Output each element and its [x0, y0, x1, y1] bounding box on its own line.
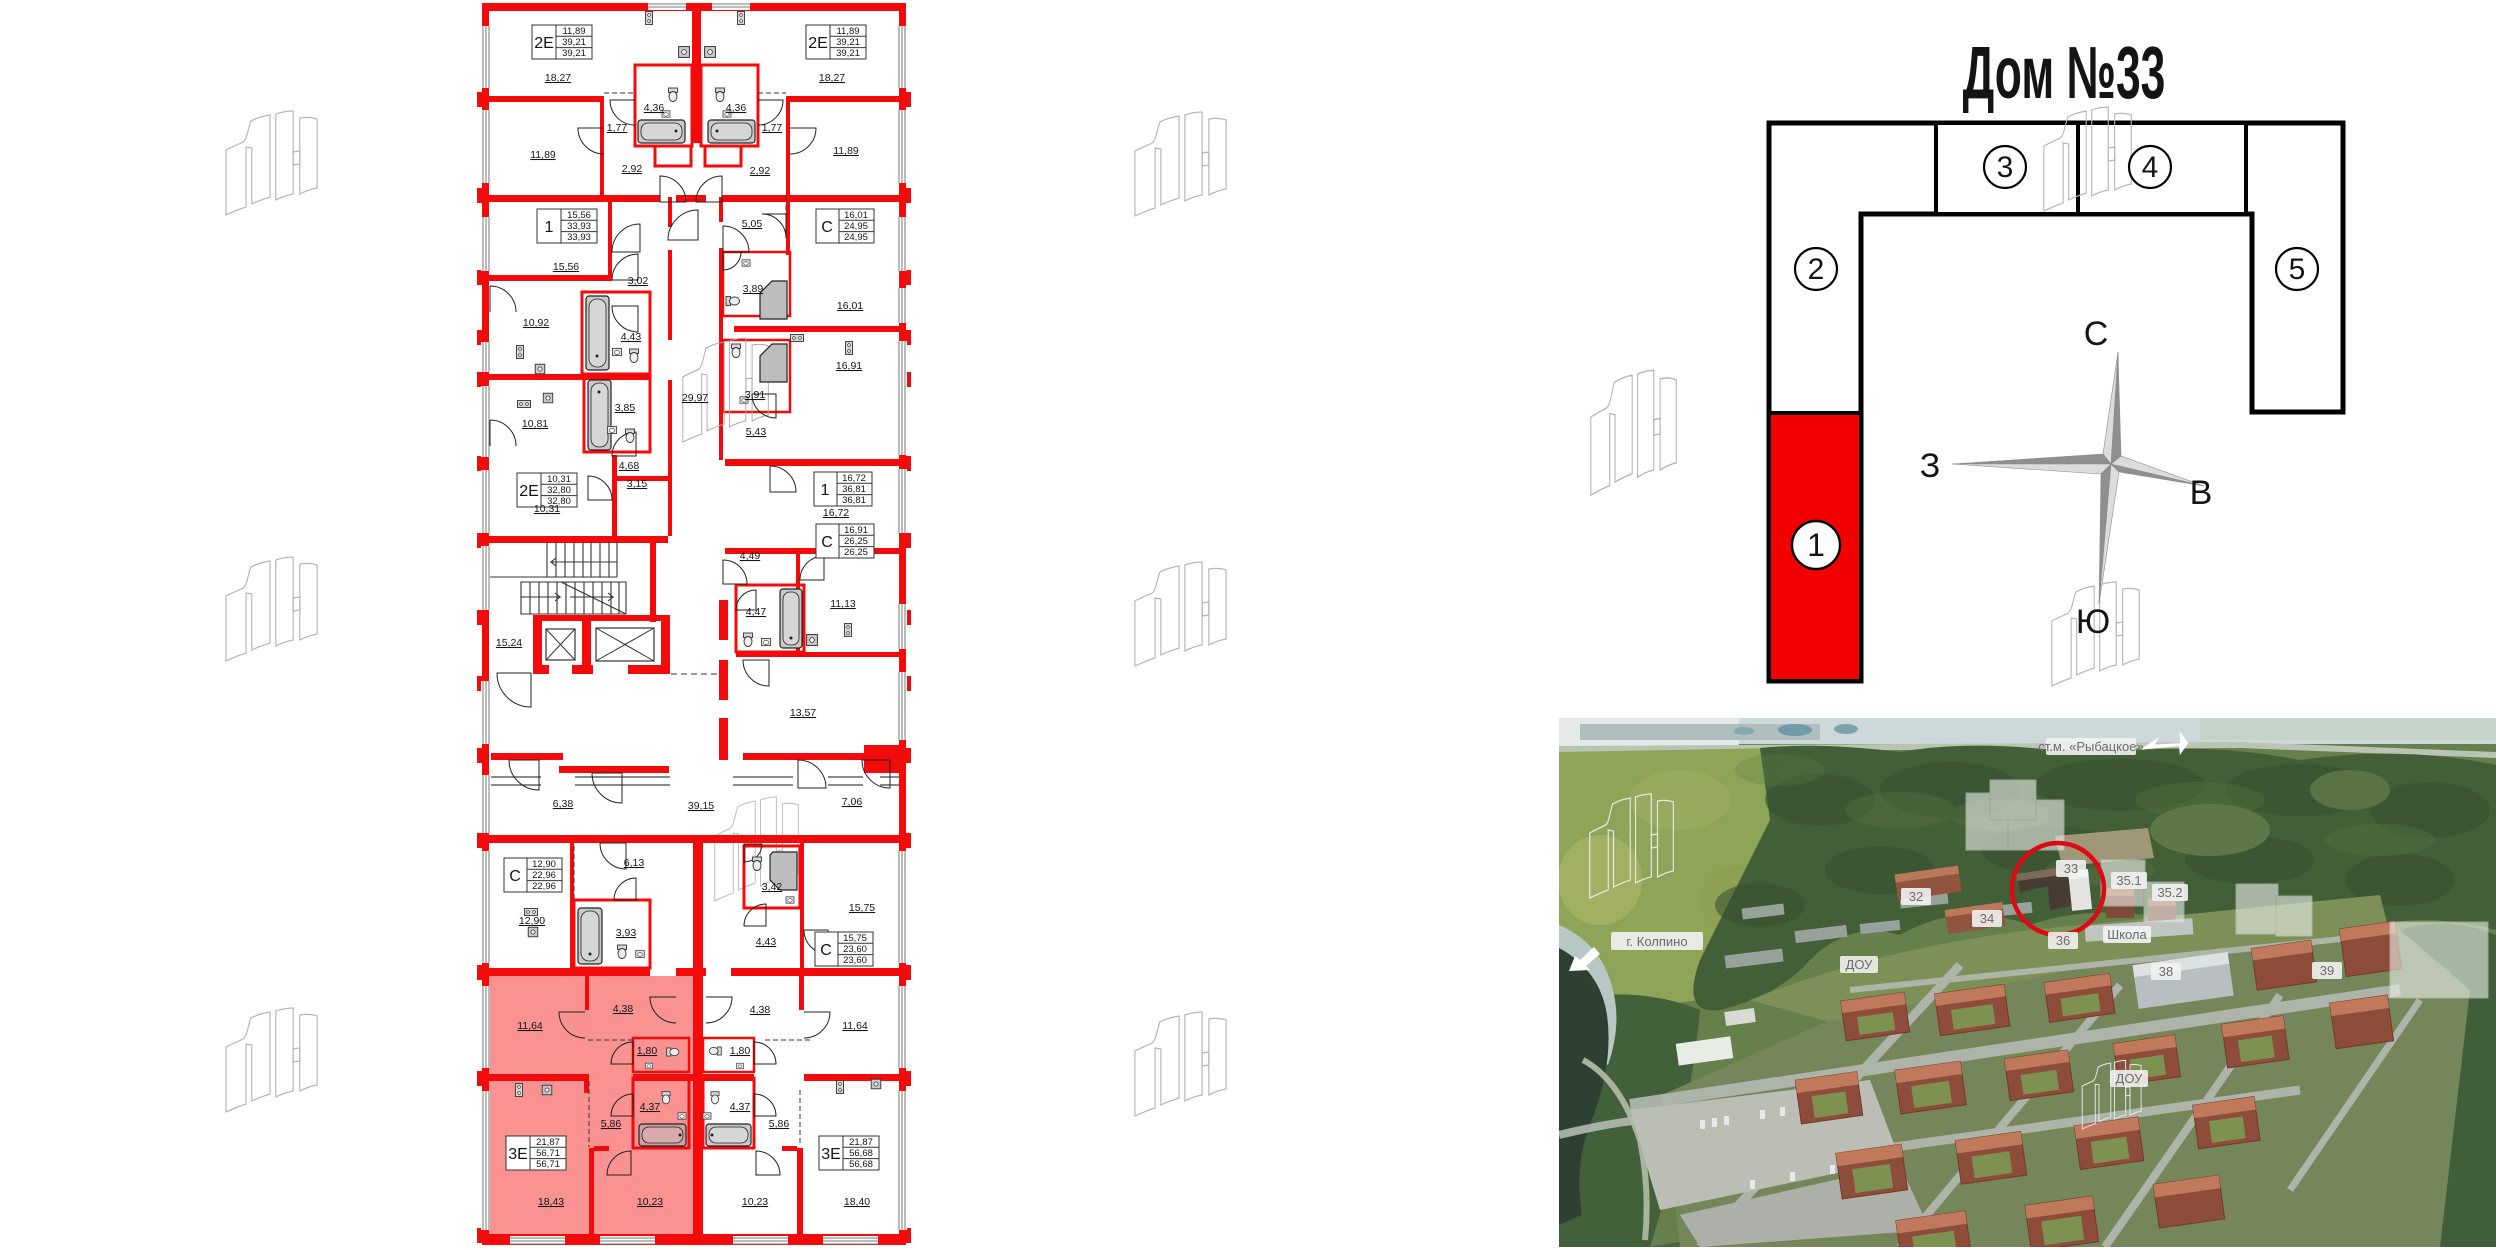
svg-text:4,38: 4,38 — [613, 1003, 634, 1015]
svg-text:3,89: 3,89 — [743, 283, 764, 295]
svg-text:1,80: 1,80 — [730, 1045, 751, 1057]
svg-text:С: С — [821, 219, 833, 236]
svg-text:39,21: 39,21 — [562, 37, 586, 48]
svg-text:56,68: 56,68 — [849, 1148, 873, 1159]
svg-text:4,37: 4,37 — [640, 1101, 661, 1113]
svg-text:3,91: 3,91 — [745, 389, 766, 401]
svg-text:11,89: 11,89 — [530, 149, 556, 161]
svg-text:16,91: 16,91 — [844, 525, 868, 536]
svg-text:21,87: 21,87 — [849, 1137, 873, 1148]
svg-text:24,95: 24,95 — [844, 232, 868, 243]
svg-text:29,97: 29,97 — [682, 392, 708, 404]
svg-text:5,43: 5,43 — [746, 426, 767, 438]
svg-text:В: В — [2190, 474, 2213, 512]
svg-text:34: 34 — [1980, 911, 1994, 926]
svg-text:5: 5 — [2289, 253, 2306, 286]
svg-text:11,89: 11,89 — [562, 26, 585, 37]
svg-text:С: С — [2084, 315, 2109, 353]
svg-text:С: С — [820, 942, 832, 959]
svg-text:22,96: 22,96 — [532, 881, 556, 892]
svg-text:3Е: 3Е — [821, 1146, 841, 1163]
svg-text:4,38: 4,38 — [750, 1004, 771, 1016]
svg-text:16,72: 16,72 — [842, 473, 866, 484]
svg-text:23,60: 23,60 — [843, 944, 867, 955]
svg-text:2: 2 — [1808, 253, 1825, 286]
svg-text:11,64: 11,64 — [842, 1020, 868, 1032]
svg-text:10,23: 10,23 — [637, 1196, 663, 1208]
svg-text:16,91: 16,91 — [836, 360, 862, 372]
svg-text:Ю: Ю — [2076, 603, 2110, 641]
svg-text:16,01: 16,01 — [844, 210, 868, 221]
svg-text:26,25: 26,25 — [844, 547, 868, 558]
svg-text:36,81: 36,81 — [842, 484, 866, 495]
svg-text:39,21: 39,21 — [836, 48, 860, 59]
svg-text:7,06: 7,06 — [842, 796, 863, 808]
svg-text:10,92: 10,92 — [523, 317, 549, 329]
svg-text:4,49: 4,49 — [740, 550, 761, 562]
svg-text:С: С — [821, 534, 833, 551]
svg-text:1,77: 1,77 — [762, 122, 783, 134]
svg-text:1: 1 — [821, 482, 830, 499]
svg-text:6,38: 6,38 — [553, 798, 574, 810]
svg-text:33: 33 — [2064, 861, 2078, 876]
svg-text:1: 1 — [1807, 527, 1825, 563]
svg-text:16,72: 16,72 — [823, 507, 849, 519]
svg-text:4,68: 4,68 — [619, 460, 640, 472]
svg-text:11,64: 11,64 — [517, 1020, 543, 1032]
svg-text:12,90: 12,90 — [532, 859, 556, 870]
svg-text:35.2: 35.2 — [2157, 885, 2182, 900]
svg-text:18,40: 18,40 — [844, 1196, 870, 1208]
svg-text:39: 39 — [2320, 963, 2334, 978]
svg-text:21,87: 21,87 — [536, 1137, 560, 1148]
svg-text:С: С — [509, 868, 521, 885]
svg-text:24,95: 24,95 — [844, 221, 868, 232]
svg-text:2,92: 2,92 — [750, 165, 771, 177]
svg-text:11,89: 11,89 — [836, 26, 859, 37]
svg-text:5,86: 5,86 — [769, 1118, 790, 1130]
svg-text:10,81: 10,81 — [522, 418, 548, 430]
svg-text:4,36: 4,36 — [726, 102, 747, 114]
svg-text:36,81: 36,81 — [842, 495, 866, 506]
svg-text:3Е: 3Е — [508, 1146, 528, 1163]
svg-text:26,25: 26,25 — [844, 536, 868, 547]
svg-text:З: З — [1920, 447, 1941, 485]
svg-text:3,93: 3,93 — [616, 927, 637, 939]
svg-text:4,43: 4,43 — [621, 331, 642, 343]
svg-text:56,71: 56,71 — [536, 1148, 560, 1159]
svg-text:3,15: 3,15 — [627, 478, 648, 490]
svg-text:4,43: 4,43 — [756, 936, 777, 948]
svg-text:39,15: 39,15 — [688, 800, 714, 812]
svg-text:35.1: 35.1 — [2116, 873, 2141, 888]
svg-text:2Е: 2Е — [534, 35, 554, 52]
svg-text:ДОУ: ДОУ — [1846, 957, 1874, 972]
svg-text:4,37: 4,37 — [730, 1101, 751, 1113]
svg-text:38: 38 — [2159, 964, 2173, 979]
svg-text:15,75: 15,75 — [843, 933, 867, 944]
svg-text:2Е: 2Е — [808, 35, 828, 52]
svg-text:1,77: 1,77 — [607, 122, 628, 134]
svg-text:18,27: 18,27 — [819, 72, 845, 84]
svg-text:1: 1 — [545, 219, 554, 236]
svg-text:10,31: 10,31 — [534, 503, 560, 515]
svg-text:Школа: Школа — [2107, 927, 2147, 942]
svg-text:3,02: 3,02 — [628, 275, 649, 287]
svg-text:5,05: 5,05 — [742, 218, 763, 230]
svg-text:32,80: 32,80 — [547, 485, 571, 496]
svg-text:39,21: 39,21 — [562, 48, 586, 59]
svg-text:4: 4 — [2142, 151, 2159, 184]
svg-text:39,21: 39,21 — [836, 37, 860, 48]
svg-text:18,27: 18,27 — [545, 72, 571, 84]
svg-text:г. Колпино: г. Колпино — [1626, 934, 1687, 949]
svg-text:2,92: 2,92 — [622, 163, 643, 175]
svg-text:5,86: 5,86 — [601, 1118, 622, 1130]
svg-text:22,96: 22,96 — [532, 870, 556, 881]
svg-text:ДОУ: ДОУ — [2116, 1071, 2144, 1086]
svg-text:36: 36 — [2056, 933, 2070, 948]
svg-text:4,47: 4,47 — [746, 606, 767, 618]
svg-text:6,13: 6,13 — [624, 857, 645, 869]
svg-text:3,42: 3,42 — [762, 881, 783, 893]
svg-text:4,36: 4,36 — [644, 102, 665, 114]
svg-text:18,43: 18,43 — [538, 1196, 564, 1208]
svg-text:33,93: 33,93 — [567, 232, 591, 243]
svg-text:3: 3 — [1997, 151, 2014, 184]
svg-text:1,80: 1,80 — [637, 1045, 658, 1057]
svg-text:ст.м. «Рыбацкое»: ст.м. «Рыбацкое» — [2038, 739, 2143, 754]
svg-text:56,71: 56,71 — [536, 1159, 560, 1170]
svg-text:15,56: 15,56 — [553, 261, 579, 273]
svg-text:32: 32 — [1909, 889, 1923, 904]
svg-text:10,23: 10,23 — [742, 1196, 768, 1208]
svg-text:15,24: 15,24 — [496, 637, 522, 649]
svg-text:Дом №33: Дом №33 — [1963, 31, 2166, 113]
svg-text:15,75: 15,75 — [849, 902, 875, 914]
svg-text:15,56: 15,56 — [567, 210, 591, 221]
svg-text:11,89: 11,89 — [833, 145, 859, 157]
svg-text:16,01: 16,01 — [837, 300, 863, 312]
svg-text:2Е: 2Е — [519, 483, 539, 500]
svg-text:10,31: 10,31 — [547, 474, 571, 485]
svg-text:33,93: 33,93 — [567, 221, 591, 232]
svg-text:56,68: 56,68 — [849, 1159, 873, 1170]
svg-text:12,90: 12,90 — [519, 915, 545, 927]
svg-text:23,60: 23,60 — [843, 955, 867, 966]
svg-text:13,57: 13,57 — [790, 707, 816, 719]
svg-text:3,85: 3,85 — [615, 402, 636, 414]
svg-text:11,13: 11,13 — [830, 598, 856, 610]
